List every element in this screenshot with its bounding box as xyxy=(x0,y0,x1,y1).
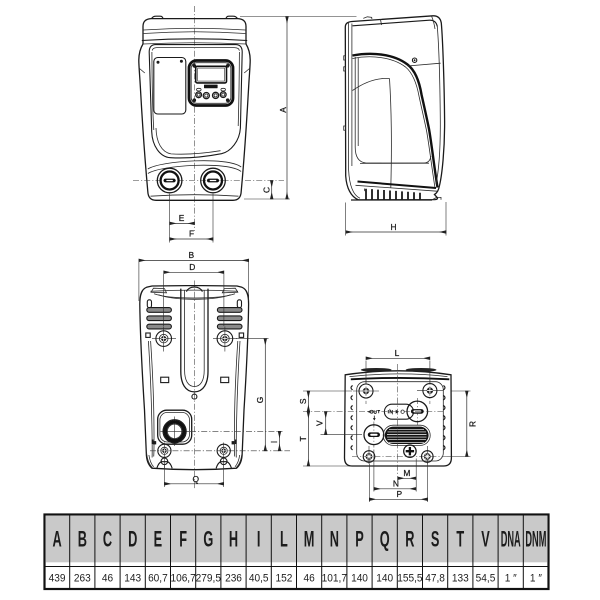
svg-text:DNM: DNM xyxy=(525,527,546,552)
svg-text:263: 263 xyxy=(74,572,91,584)
svg-text:60,7: 60,7 xyxy=(148,572,168,584)
svg-text:C: C xyxy=(103,527,112,551)
svg-text:C: C xyxy=(261,187,271,193)
svg-text:D: D xyxy=(128,527,137,551)
svg-text:M: M xyxy=(403,468,410,478)
svg-text:140: 140 xyxy=(376,572,393,584)
svg-text:54,5: 54,5 xyxy=(476,572,496,584)
svg-text:40,5: 40,5 xyxy=(249,572,269,584)
svg-text:Q: Q xyxy=(192,474,199,484)
svg-text:H: H xyxy=(229,527,238,551)
svg-text:236: 236 xyxy=(225,572,242,584)
svg-text:P: P xyxy=(397,489,403,499)
svg-text:155,5: 155,5 xyxy=(397,572,422,584)
svg-text:1 ″: 1 ″ xyxy=(505,572,517,584)
svg-text:T: T xyxy=(298,436,308,441)
svg-text:G: G xyxy=(203,527,213,551)
svg-text:D: D xyxy=(189,262,195,272)
svg-text:A: A xyxy=(52,527,61,551)
svg-text:46: 46 xyxy=(102,572,113,584)
svg-text:279,5: 279,5 xyxy=(196,572,221,584)
svg-text:F: F xyxy=(179,527,187,551)
svg-text:I: I xyxy=(257,527,261,551)
svg-text:N: N xyxy=(393,479,399,489)
svg-text:140: 140 xyxy=(351,572,368,584)
svg-text:I: I xyxy=(269,441,279,443)
svg-text:E: E xyxy=(179,213,185,223)
svg-text:439: 439 xyxy=(49,572,66,584)
svg-text:R: R xyxy=(468,421,478,427)
svg-text:133: 133 xyxy=(452,572,469,584)
svg-text:G: G xyxy=(255,397,265,404)
svg-text:S: S xyxy=(298,398,308,404)
svg-text:N: N xyxy=(330,527,339,551)
svg-text:47,8: 47,8 xyxy=(425,572,445,584)
svg-text:M: M xyxy=(304,527,315,551)
svg-text:F: F xyxy=(189,229,194,239)
svg-text:143: 143 xyxy=(124,572,141,584)
svg-text:152: 152 xyxy=(275,572,292,584)
svg-text:101,7: 101,7 xyxy=(322,572,347,584)
svg-text:V: V xyxy=(315,420,325,426)
svg-text:A: A xyxy=(278,107,288,113)
svg-text:T: T xyxy=(456,527,464,551)
svg-text:Q: Q xyxy=(380,527,390,551)
svg-text:V: V xyxy=(481,527,490,551)
svg-text:1 ″: 1 ″ xyxy=(530,572,542,584)
svg-text:L: L xyxy=(280,527,288,551)
svg-text:R: R xyxy=(405,527,414,551)
svg-text:46: 46 xyxy=(303,572,314,584)
svg-text:DNA: DNA xyxy=(501,527,521,552)
svg-text:B: B xyxy=(189,250,195,260)
svg-text:S: S xyxy=(431,527,440,551)
svg-text:L: L xyxy=(395,348,400,358)
svg-text:B: B xyxy=(78,527,87,551)
svg-text:H: H xyxy=(390,222,396,232)
svg-text:P: P xyxy=(355,527,364,551)
svg-text:E: E xyxy=(154,527,163,551)
svg-text:106,7: 106,7 xyxy=(170,572,195,584)
